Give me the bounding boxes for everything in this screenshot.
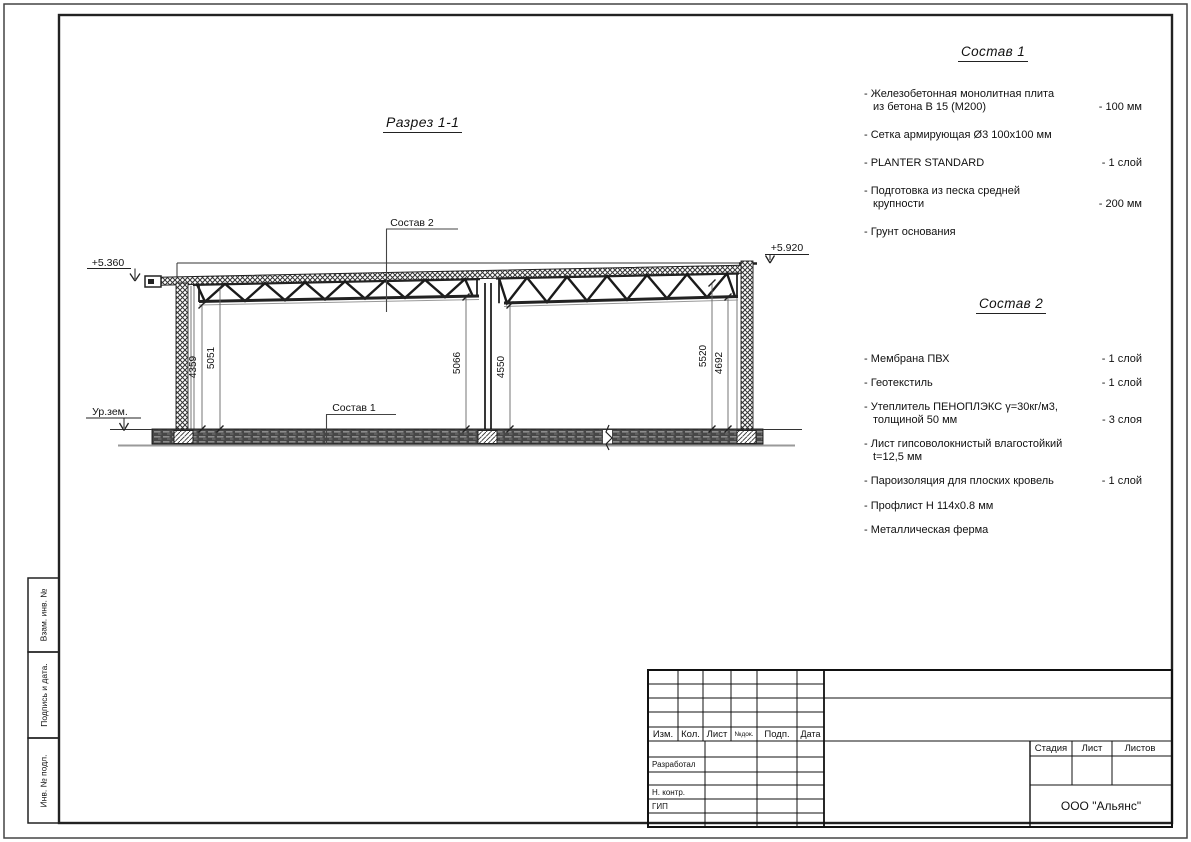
dim-label: 4359 (188, 355, 199, 378)
material-value: - 1 слой (1102, 353, 1142, 366)
right-truss (496, 273, 739, 306)
material-value: - 100 мм (1099, 101, 1142, 114)
stamp-label: Подпись и дата. (39, 663, 49, 727)
titleblock-header-list: Лист (703, 727, 731, 741)
material-name: - Подготовка из песка средней крупности (864, 185, 1020, 211)
company-name: ООО "Альянс" (1030, 785, 1172, 827)
material-item: - Металлическая ферма (864, 524, 1142, 537)
stamp-cell-inv: Инв. № подл. (28, 738, 59, 823)
material-name: - Утеплитель ПЕНОПЛЭКС γ=30кг/м3, толщин… (864, 401, 1058, 427)
material-name: - Сетка армирующая Ø3 100х100 мм (864, 129, 1052, 142)
material-value: - 200 мм (1099, 198, 1142, 211)
material-value: - 3 слоя (1102, 414, 1142, 427)
sostav2-list: - Мембрана ПВХ - 1 слой - Геотекстиль - … (864, 353, 1142, 548)
titleblock-header-izm: Изм. (648, 727, 678, 741)
ground-level-label: Ур.зем. (92, 406, 128, 418)
material-item: - Лист гипсоволокнистый влагостойкий t=1… (864, 438, 1142, 464)
dim-label: 5520 (698, 344, 709, 367)
drawing-sheet: 4359 5051 5066 4550 5520 4692 +5.360 +5.… (0, 0, 1191, 842)
material-name: - Профлист Н 114х0.8 мм (864, 500, 993, 513)
material-name: - Железобетонная монолитная плита из бет… (864, 88, 1054, 114)
sostav1-heading: Состав 1 (958, 44, 1028, 62)
material-item: - Мембрана ПВХ - 1 слой (864, 353, 1142, 366)
dim-label: 4692 (714, 351, 725, 374)
stamp-cell-vzam: Взам. инв. № (28, 578, 59, 652)
titleblock-header-podp: Подп. (757, 727, 797, 741)
stamp-label: Взам. инв. № (39, 589, 49, 642)
titleblock-header-kol: Кол. (678, 727, 703, 741)
material-item: - Утеплитель ПЕНОПЛЭКС γ=30кг/м3, толщин… (864, 401, 1142, 427)
material-item: - Геотекстиль - 1 слой (864, 377, 1142, 390)
material-name: - Мембрана ПВХ (864, 353, 949, 366)
material-name: - Лист гипсоволокнистый влагостойкий t=1… (864, 438, 1062, 464)
dim-label: 4550 (496, 355, 507, 378)
titleblock-sheets-header: Листов (1112, 741, 1168, 756)
titleblock-role-ncontrol: Н. контр. (652, 785, 704, 799)
section-title: Разрез 1-1 (383, 114, 462, 133)
elevation-right-label: +5.920 (771, 242, 804, 254)
material-item: - Грунт основания (864, 226, 1142, 239)
material-name: - PLANTER STANDARD (864, 157, 984, 170)
titleblock-stage-header: Стадия (1030, 741, 1072, 756)
titleblock-sheet-header: Лист (1072, 741, 1112, 756)
elevation-left-label: +5.360 (92, 257, 125, 269)
titleblock-header-ndok: №док. (731, 727, 757, 741)
sostav1-list: - Железобетонная монолитная плита из бет… (864, 88, 1142, 254)
material-name: - Грунт основания (864, 226, 956, 239)
dim-label: 5066 (452, 351, 463, 374)
material-item: - Железобетонная монолитная плита из бет… (864, 88, 1142, 114)
stamp-cell-podpis: Подпись и дата. (28, 652, 59, 738)
floor-slab (110, 425, 802, 450)
titleblock-header-data: Дата (797, 727, 824, 741)
material-item: - Профлист Н 114х0.8 мм (864, 500, 1142, 513)
material-item: - Подготовка из песка средней крупности … (864, 185, 1142, 211)
material-value: - 1 слой (1102, 377, 1142, 390)
material-name: - Металлическая ферма (864, 524, 988, 537)
material-item: - Сетка армирующая Ø3 100х100 мм (864, 129, 1142, 142)
material-name: - Геотекстиль (864, 377, 935, 390)
left-wall (176, 283, 188, 430)
titleblock-role-developer: Разработал (652, 757, 704, 772)
middle-column (485, 283, 491, 429)
material-value: - 1 слой (1102, 157, 1142, 170)
material-name: - Пароизоляция для плоских кровель (864, 475, 1054, 488)
material-value: - 1 слой (1102, 475, 1142, 488)
callouts: Состав 2 Состав 1 (326, 217, 458, 444)
callout-sostav1-label: Состав 1 (332, 402, 376, 414)
sostav2-heading: Состав 2 (976, 296, 1046, 314)
dim-label: 5051 (206, 346, 217, 369)
callout-sostav2-label: Состав 2 (390, 217, 434, 229)
stamp-label: Инв. № подл. (39, 754, 49, 807)
titleblock-role-gip: ГИП (652, 799, 704, 813)
right-wall (741, 261, 753, 430)
material-item: - PLANTER STANDARD - 1 слой (864, 157, 1142, 170)
material-item: - Пароизоляция для плоских кровель - 1 с… (864, 475, 1142, 488)
